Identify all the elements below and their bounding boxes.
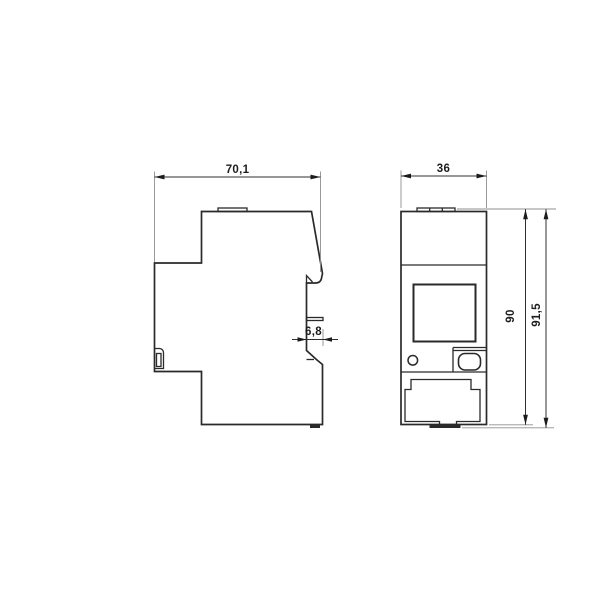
arrowhead-icon xyxy=(477,174,487,179)
arrowhead-icon xyxy=(544,209,549,219)
front-top-tab xyxy=(417,208,455,212)
arrowhead-icon xyxy=(311,175,321,180)
arrowhead-icon xyxy=(544,418,549,428)
technical-drawing-canvas: 70,1 6,8 xyxy=(0,0,600,600)
arrowhead-icon xyxy=(401,174,411,179)
side-bottom-foot xyxy=(310,425,320,429)
side-profile-view: 70,1 6,8 xyxy=(155,164,339,428)
arrowhead-icon xyxy=(523,415,528,425)
side-body-outline xyxy=(155,212,323,425)
front-width-dimension: 36 xyxy=(401,163,487,208)
arrowhead-icon xyxy=(523,209,528,219)
side-width-dim-label: 70,1 xyxy=(226,164,250,176)
front-view: 36 90 91,5 xyxy=(401,163,556,428)
display-window xyxy=(414,285,476,342)
front-width-dim-label: 36 xyxy=(437,163,450,175)
dimension-drawing: 70,1 6,8 xyxy=(0,0,600,600)
indicator-led xyxy=(408,356,418,366)
front-bottom-foot xyxy=(430,425,461,429)
overall-height-dim-label: 91,5 xyxy=(531,303,543,327)
side-top-tab xyxy=(218,208,247,212)
arrowhead-icon xyxy=(323,337,332,341)
recess-depth-dim-label: 6,8 xyxy=(305,326,322,338)
arrowhead-icon xyxy=(155,175,165,180)
body-height-dim-label: 90 xyxy=(505,309,517,322)
push-button xyxy=(459,354,481,371)
recess-rib xyxy=(307,318,324,321)
